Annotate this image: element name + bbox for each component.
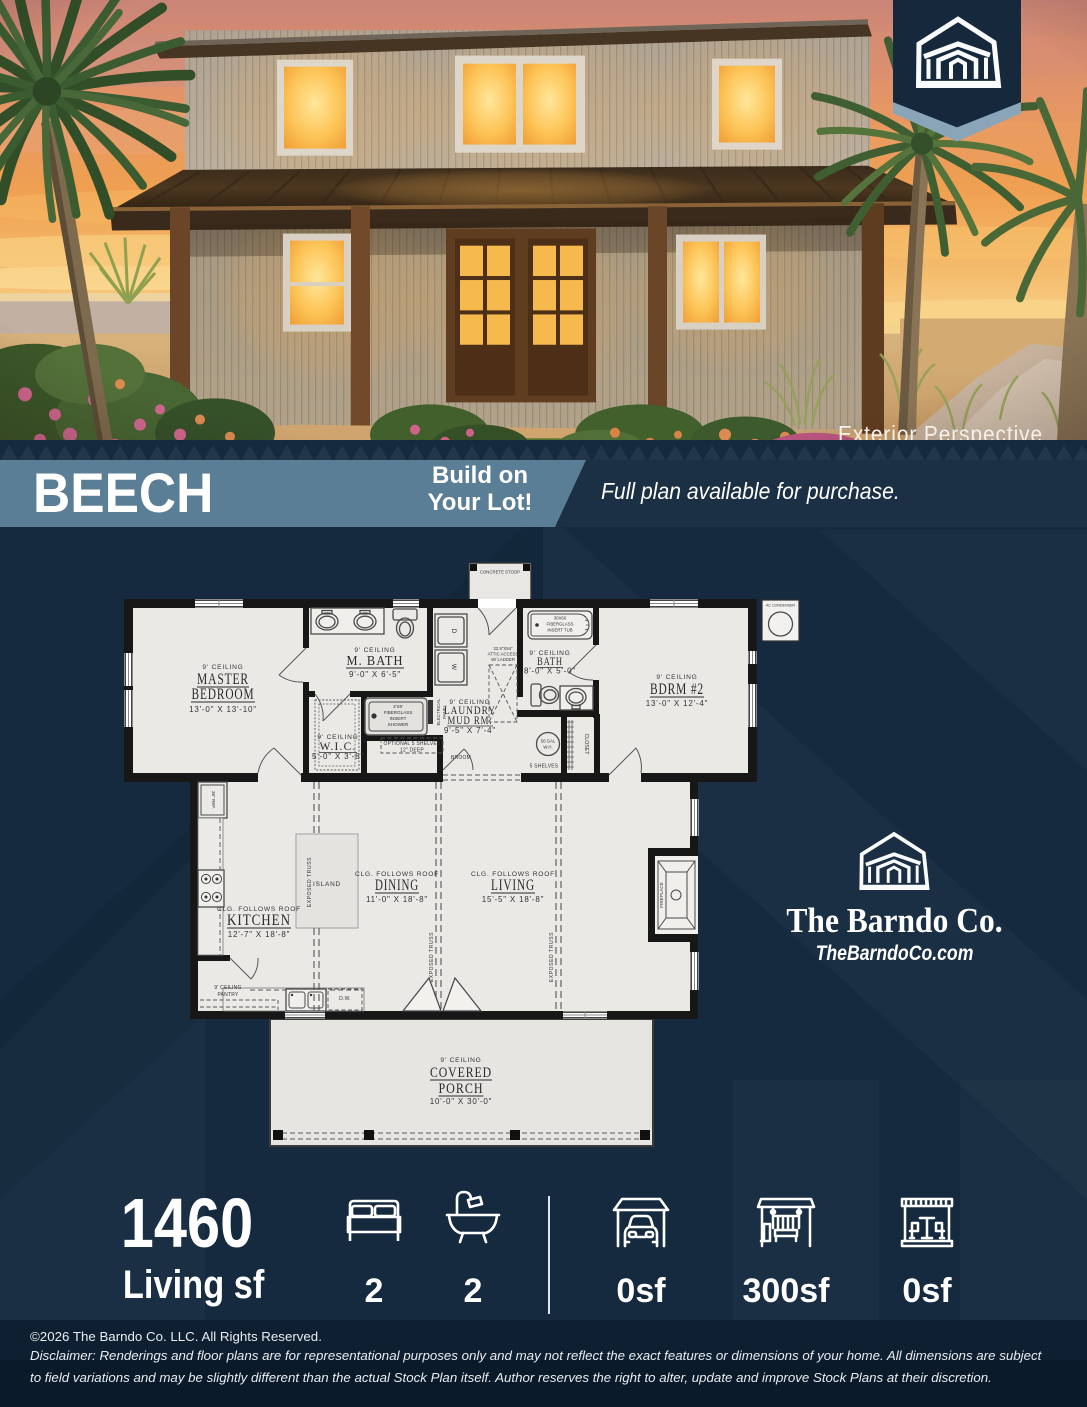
svg-text:D.W.: D.W.	[339, 996, 351, 1002]
svg-text:D: D	[450, 629, 457, 634]
svg-text:PORCH: PORCH	[439, 1081, 484, 1097]
svg-text:M. BATH: M. BATH	[347, 654, 404, 669]
svg-text:INSERT TUB: INSERT TUB	[547, 628, 572, 633]
svg-text:LIVING: LIVING	[491, 877, 535, 894]
svg-text:CONCRETE STOOP: CONCRETE STOOP	[480, 570, 520, 575]
svg-text:9'-0" X 6'-5": 9'-0" X 6'-5"	[349, 670, 401, 679]
svg-text:BEDROOM: BEDROOM	[192, 686, 255, 703]
svg-text:PANTRY: PANTRY	[217, 992, 238, 998]
svg-text:CLOSET: CLOSET	[583, 734, 589, 756]
svg-text:36" REF.: 36" REF.	[211, 791, 216, 809]
svg-text:EXPOSED TRUSS: EXPOSED TRUSS	[429, 932, 435, 982]
svg-text:FIREPLACE: FIREPLACE	[659, 882, 664, 908]
svg-text:BDRM #2: BDRM #2	[650, 681, 704, 698]
svg-text:9'-5" X 7'-4": 9'-5" X 7'-4"	[444, 726, 496, 735]
svg-text:FIBERGLASS: FIBERGLASS	[547, 622, 574, 627]
svg-text:AC CONDENSER: AC CONDENSER	[766, 604, 795, 608]
svg-text:FIBERGLASS: FIBERGLASS	[384, 710, 413, 715]
svg-text:9' CEILING: 9' CEILING	[214, 985, 241, 991]
svg-text:W: W	[450, 664, 457, 671]
svg-text:ELECTRICAL: ELECTRICAL	[436, 698, 441, 726]
svg-text:OPTIONAL 5 SHELVES: OPTIONAL 5 SHELVES	[384, 741, 441, 747]
svg-text:12'-7" X 18'-8": 12'-7" X 18'-8"	[228, 930, 291, 939]
svg-text:13'-0" X 13'-10": 13'-0" X 13'-10"	[189, 705, 257, 714]
svg-text:KITCHEN: KITCHEN	[227, 912, 291, 929]
svg-text:COVERED: COVERED	[430, 1065, 492, 1081]
svg-text:9' CEILING: 9' CEILING	[656, 674, 697, 681]
svg-text:DINING: DINING	[375, 877, 419, 894]
svg-text:INSERT: INSERT	[390, 716, 407, 721]
svg-text:30X60: 30X60	[554, 616, 567, 621]
svg-text:SHOWER: SHOWER	[388, 722, 409, 727]
svg-text:10'-0" X 30'-0": 10'-0" X 30'-0"	[430, 1097, 493, 1106]
svg-text:13'-0" X 12'-4": 13'-0" X 12'-4"	[646, 699, 709, 708]
svg-text:9' CEILING: 9' CEILING	[440, 1057, 481, 1064]
svg-text:9' CEILING: 9' CEILING	[202, 664, 243, 671]
svg-text:12" DEEP: 12" DEEP	[400, 748, 424, 754]
svg-text:W/ LADDER: W/ LADDER	[491, 657, 515, 662]
svg-text:3'X6': 3'X6'	[393, 704, 403, 709]
svg-text:5 SHELVES: 5 SHELVES	[530, 764, 559, 770]
svg-text:9' CEILING: 9' CEILING	[354, 647, 395, 654]
svg-text:ATTIC ACCESS: ATTIC ACCESS	[488, 652, 519, 657]
svg-text:EXPOSED TRUSS: EXPOSED TRUSS	[549, 932, 555, 982]
svg-text:EXPOSED TRUSS: EXPOSED TRUSS	[307, 857, 313, 907]
svg-text:ISLAND: ISLAND	[313, 881, 341, 888]
svg-text:5'-0" X 3'-8": 5'-0" X 3'-8"	[312, 752, 364, 761]
svg-text:BROOM: BROOM	[451, 755, 471, 761]
svg-text:22.5"X54": 22.5"X54"	[493, 646, 513, 651]
svg-text:8'-0" X 5'-0": 8'-0" X 5'-0"	[524, 667, 576, 676]
svg-text:9' CEILING: 9' CEILING	[317, 734, 358, 741]
svg-text:50 GAL: 50 GAL	[541, 739, 556, 744]
svg-text:W.H.: W.H.	[543, 745, 552, 750]
svg-text:11'-0" X 18'-8": 11'-0" X 18'-8"	[366, 895, 428, 904]
svg-text:15'-5" X 18'-8": 15'-5" X 18'-8"	[482, 895, 545, 904]
